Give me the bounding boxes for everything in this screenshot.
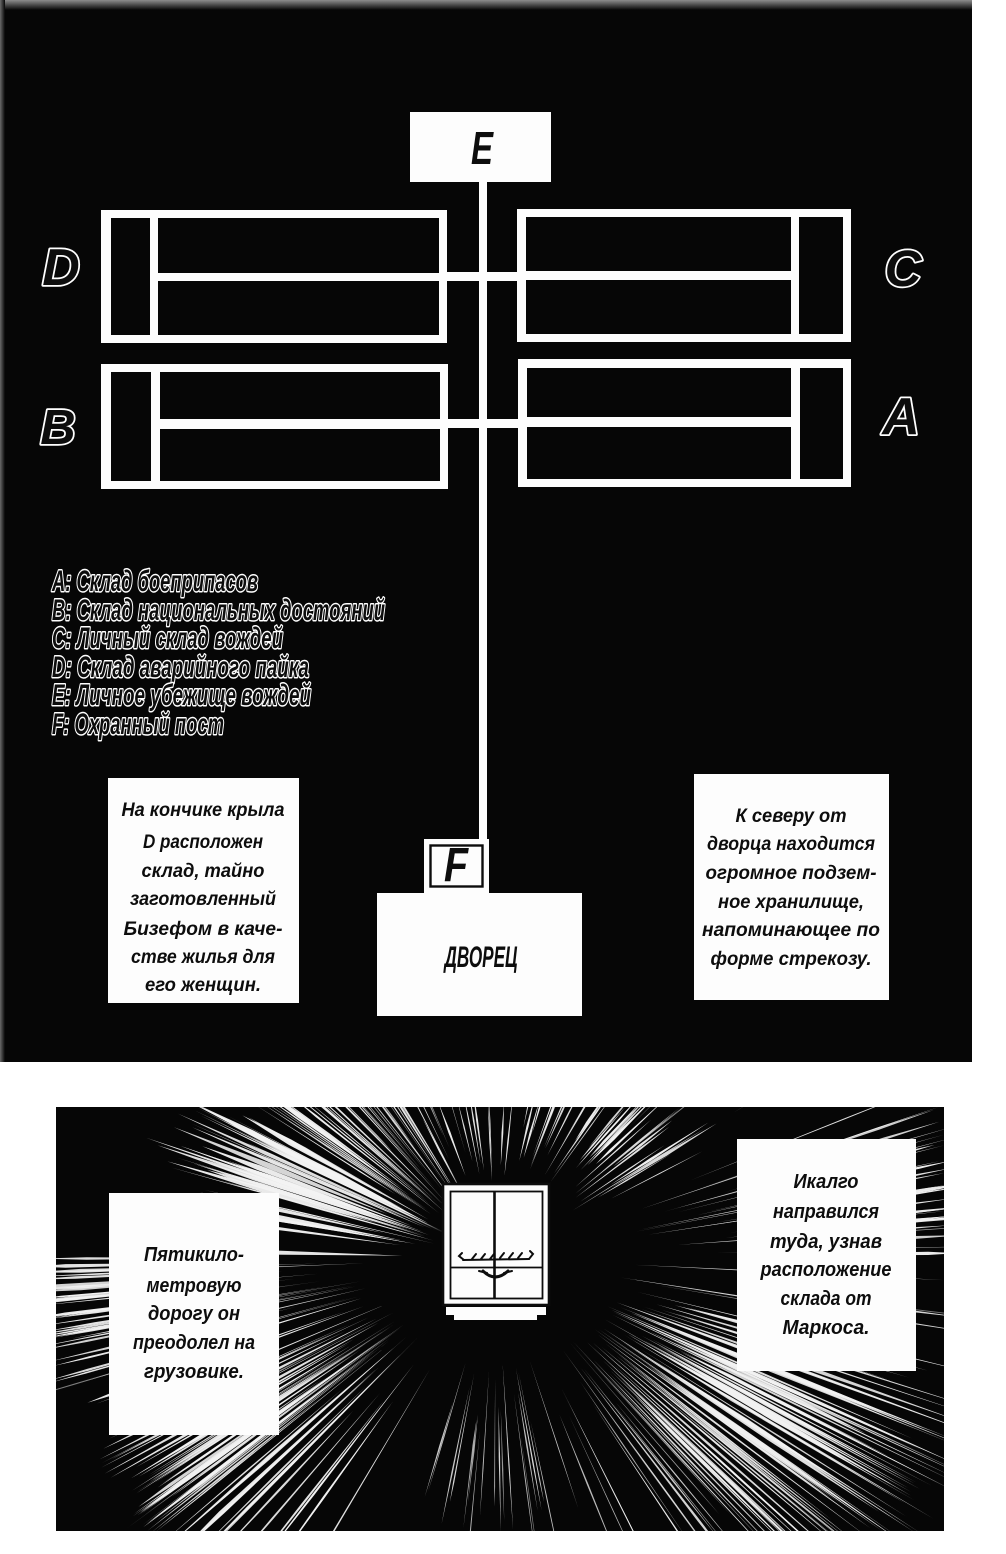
svg-text:На кончике крыла: На кончике крыла (122, 799, 285, 821)
svg-text:преодолел на: преодолел на (133, 1332, 255, 1354)
svg-text:Маркоса.: Маркоса. (783, 1317, 870, 1339)
svg-text:К северу от: К северу от (736, 805, 847, 827)
svg-text:Пятикило-: Пятикило- (144, 1244, 244, 1266)
svg-text:расположение: расположение (760, 1259, 892, 1281)
svg-text:склада от: склада от (781, 1288, 872, 1310)
svg-text:стве жилья для: стве жилья для (131, 946, 275, 968)
svg-text:грузовике.: грузовике. (144, 1361, 244, 1383)
svg-text:метровую: метровую (147, 1275, 242, 1297)
svg-text:Икалго: Икалго (794, 1171, 859, 1193)
svg-text:D расположен: D расположен (143, 831, 263, 853)
svg-text:его женщин.: его женщин. (145, 974, 261, 996)
svg-text:заготовленный: заготовленный (130, 888, 276, 910)
svg-text:F: F (444, 839, 469, 892)
svg-text:форме стрекозу.: форме стрекозу. (711, 948, 872, 970)
svg-text:C: C (885, 240, 923, 297)
svg-text:дворца находится: дворца находится (707, 833, 875, 855)
svg-text:огромное подзем-: огромное подзем- (706, 862, 877, 884)
svg-text:ное хранилище,: ное хранилище, (718, 891, 864, 913)
svg-text:Бизефом в каче-: Бизефом в каче- (124, 918, 283, 940)
svg-text:напоминающее по: напоминающее по (702, 919, 880, 941)
svg-text:A: A (880, 388, 920, 446)
svg-text:направился: направился (773, 1201, 879, 1223)
svg-text:дорогу он: дорогу он (148, 1303, 240, 1325)
svg-text:E: E (471, 122, 494, 174)
svg-text:D: D (42, 239, 80, 297)
svg-text:ДВОРЕЦ: ДВОРЕЦ (443, 941, 518, 974)
svg-text:F: Охранный пост: F: Охранный пост (52, 708, 224, 741)
svg-text:B: B (40, 401, 75, 455)
svg-text:склад, тайно: склад, тайно (142, 860, 265, 882)
svg-text:туда, узнав: туда, узнав (770, 1231, 882, 1253)
